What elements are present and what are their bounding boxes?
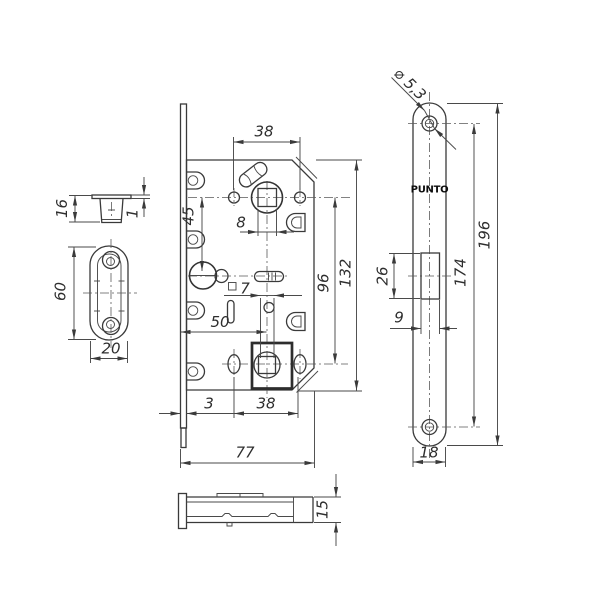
guide-pin-circle bbox=[264, 303, 274, 313]
strike-front-view: 60 20 bbox=[52, 239, 138, 363]
faceplate-view: ⌀ 5,3 PUNTO 26 9 174 196 18 bbox=[374, 64, 504, 467]
leader-line bbox=[435, 129, 457, 150]
latch-pawl bbox=[237, 160, 270, 190]
brand-logo: PUNTO bbox=[411, 185, 449, 196]
dim-total-length: 196 bbox=[476, 221, 494, 250]
dim-flange-thickness: 1 bbox=[124, 209, 142, 219]
dim-body-height: 132 bbox=[337, 259, 355, 288]
rivet-tab-4 bbox=[187, 363, 205, 380]
pawl-body bbox=[237, 160, 270, 190]
dim-faceplate-offset: 3 bbox=[204, 395, 214, 413]
dim-total-depth: 77 bbox=[235, 444, 255, 462]
square-symbol bbox=[229, 283, 237, 291]
slot-outer bbox=[287, 313, 306, 331]
rivet-slot-lower bbox=[287, 313, 306, 331]
tab-outline bbox=[187, 363, 205, 380]
dim-bottom-screw-spacing: 38 bbox=[256, 395, 275, 413]
side-faceplate-bar bbox=[179, 494, 187, 529]
dim-latch-cutout-width: 9 bbox=[394, 309, 404, 327]
tab-rivet bbox=[188, 306, 198, 316]
faceplate-edge-foot bbox=[181, 428, 186, 448]
rivet-tab-1 bbox=[187, 172, 205, 189]
spring-detail bbox=[255, 272, 284, 282]
dim-square-bottom: 7 bbox=[240, 280, 250, 298]
drawing-sheet: 38 45 8 96 132 7 50 3 bbox=[0, 0, 600, 600]
dim-strike-width: 20 bbox=[101, 340, 120, 358]
tab-rivet bbox=[188, 176, 198, 186]
tab-rivet bbox=[188, 367, 198, 377]
dim-strike-length: 60 bbox=[52, 282, 70, 301]
strike-screw-bottom-inner bbox=[107, 321, 115, 329]
dim-screw-spacing: 174 bbox=[452, 258, 470, 287]
technical-drawing-canvas: 38 45 8 96 132 7 50 3 bbox=[0, 0, 600, 600]
slot-inner bbox=[292, 316, 302, 327]
pawl-inner-line bbox=[253, 166, 262, 177]
slot-inner bbox=[292, 217, 302, 228]
dim-backset: 50 bbox=[210, 313, 229, 331]
dim-strike-depth: 16 bbox=[53, 199, 71, 218]
dim-hub-centers: 96 bbox=[315, 273, 333, 292]
strike-flange bbox=[92, 195, 131, 199]
tab-rivet bbox=[188, 235, 198, 245]
strike-screw-top-inner bbox=[107, 258, 115, 266]
spring-housing bbox=[255, 272, 284, 282]
strike-top-view: 16 1 bbox=[53, 177, 150, 223]
rivet-slot-upper bbox=[287, 214, 306, 232]
dim-square-top: 8 bbox=[236, 214, 246, 232]
dim-latch-cutout-height: 26 bbox=[374, 266, 392, 285]
pawl-fold-line bbox=[243, 173, 252, 184]
dim-faceplate-width: 18 bbox=[419, 444, 438, 462]
dim-hub-to-wc: 45 bbox=[180, 206, 198, 225]
tab-outline bbox=[187, 302, 205, 319]
side-inner-notched-line bbox=[187, 514, 294, 517]
slot-outer bbox=[287, 214, 306, 232]
lock-body-view: 38 45 8 96 132 7 50 3 bbox=[159, 104, 362, 468]
dim-hole-diameter: ⌀ 5,3 bbox=[390, 64, 429, 103]
faceplate-edge bbox=[181, 104, 187, 428]
rivet-tab-3 bbox=[187, 302, 205, 319]
dim-body-thickness: 15 bbox=[314, 500, 332, 519]
dim-top-screw-spacing: 38 bbox=[254, 123, 273, 141]
side-view: 15 bbox=[179, 474, 342, 546]
tab-outline bbox=[187, 172, 205, 189]
